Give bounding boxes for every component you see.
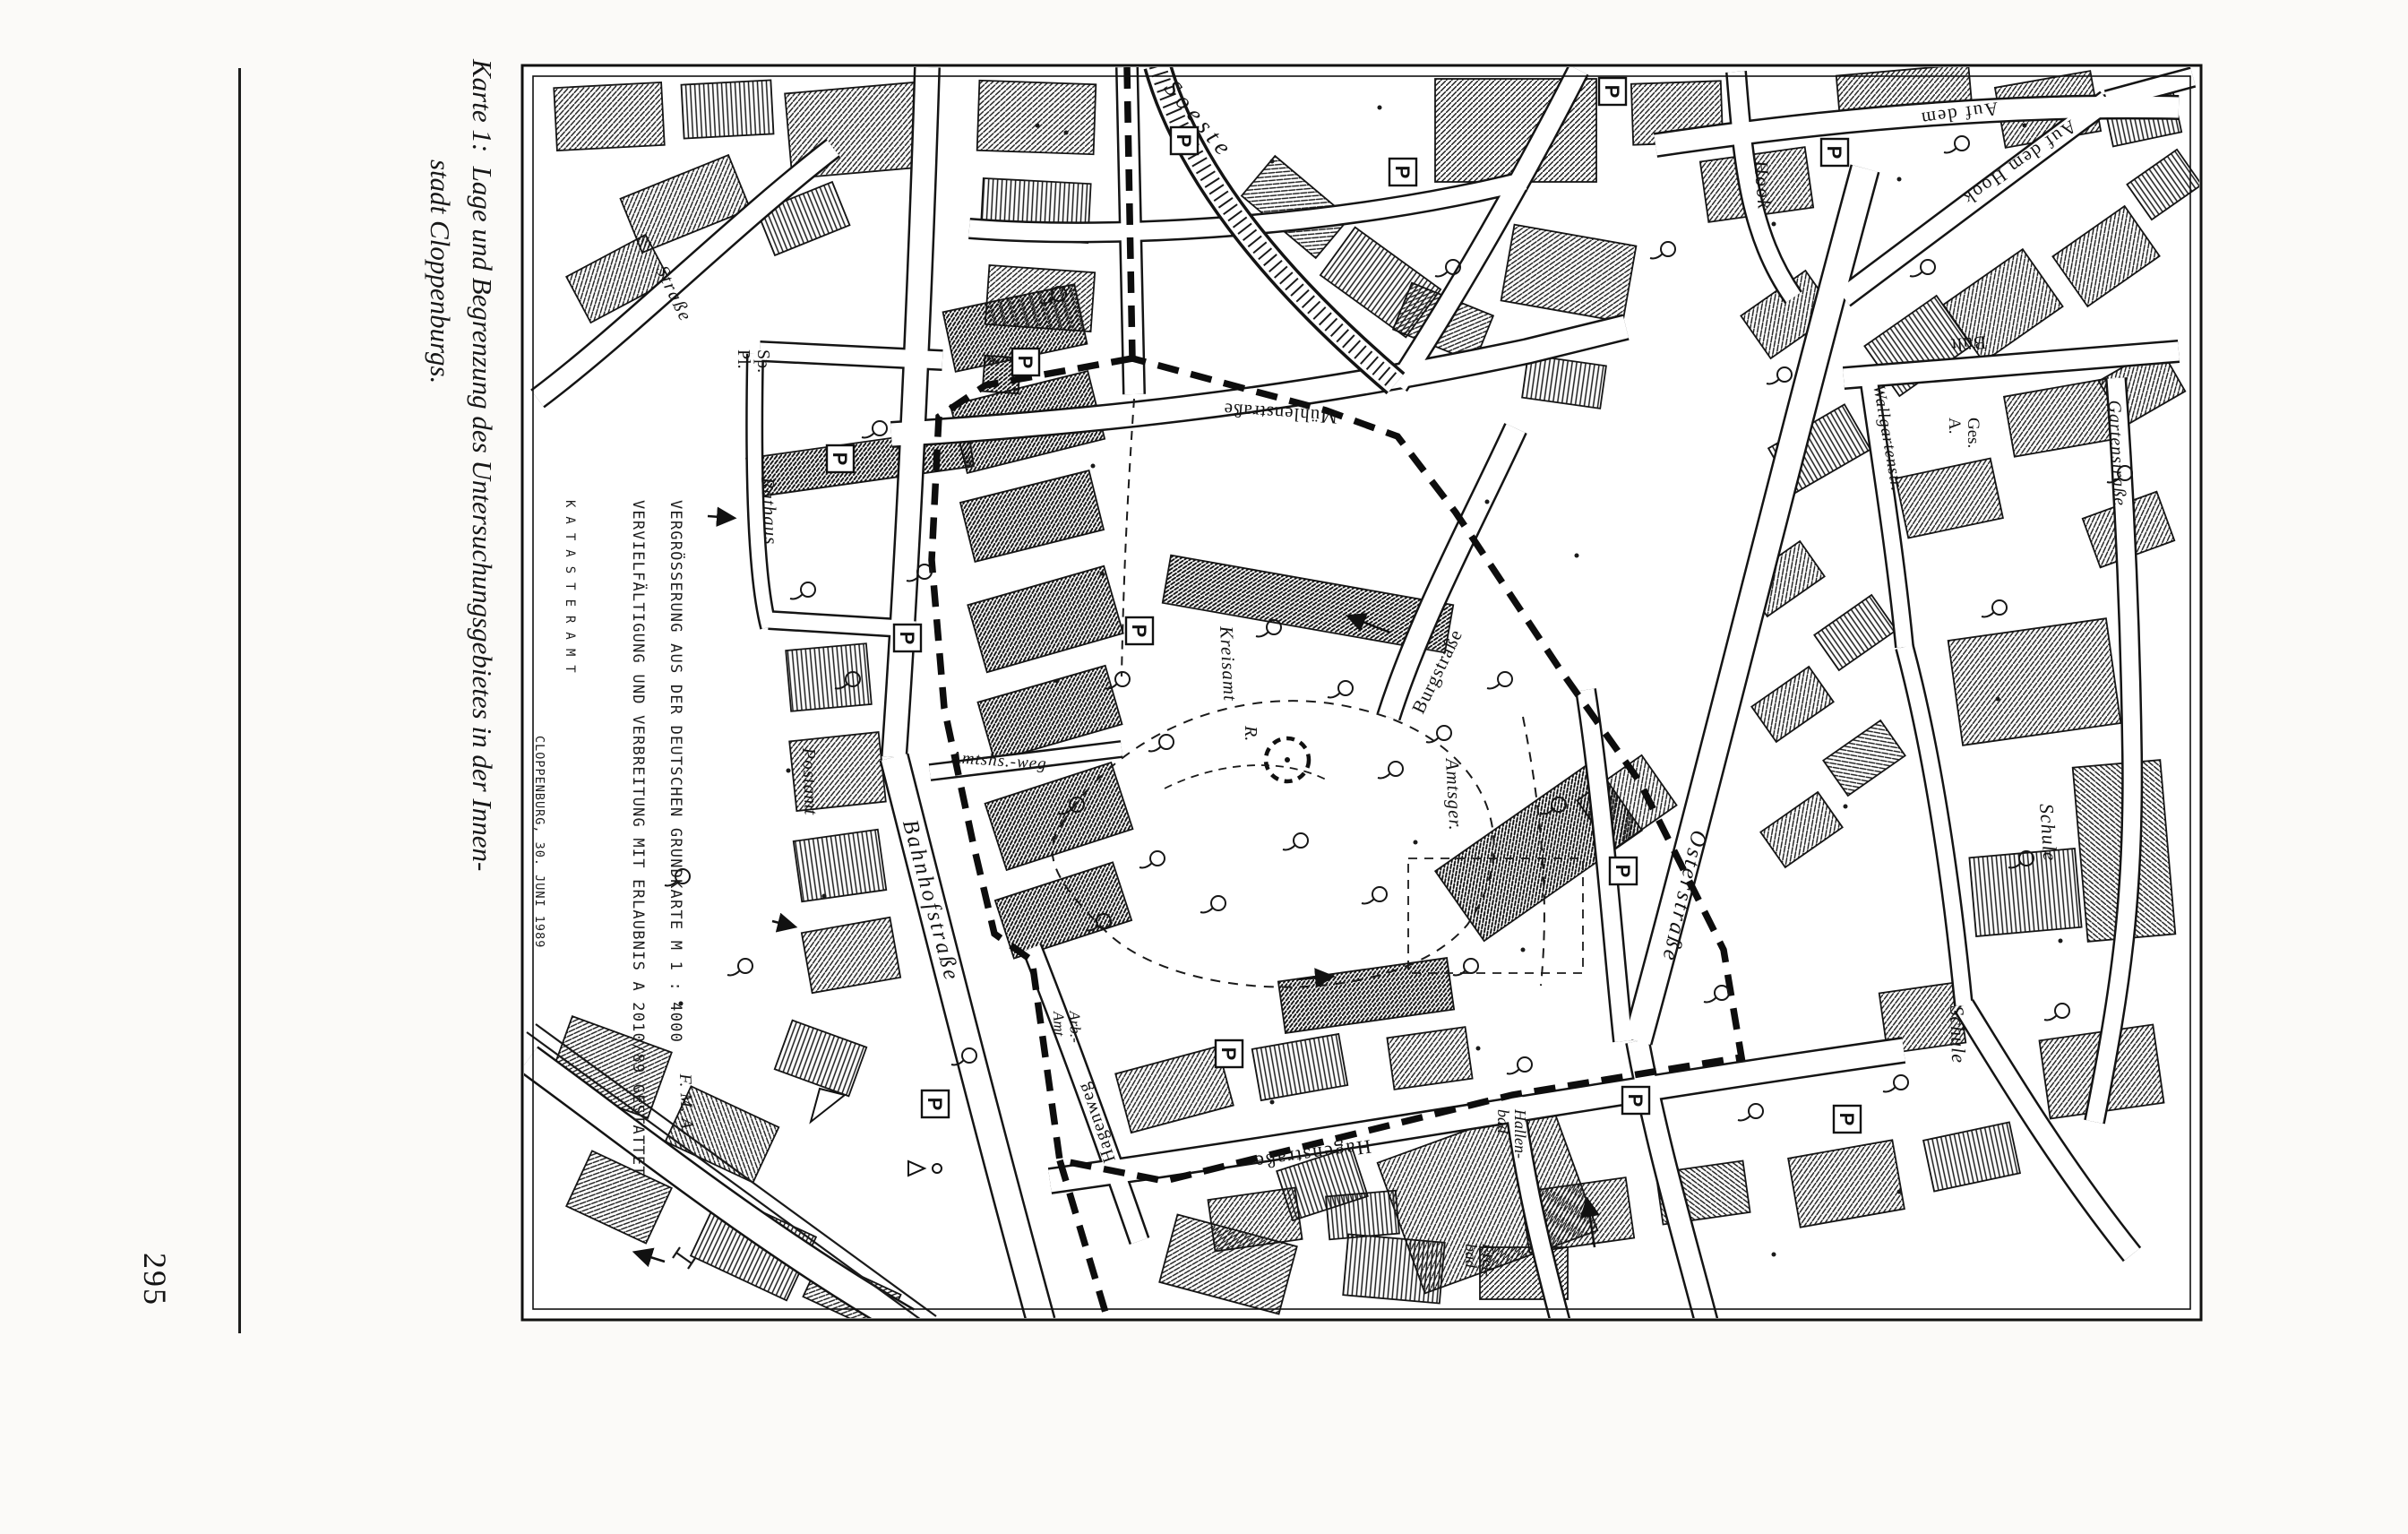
building — [681, 80, 773, 138]
map-attribution: VERGRÖSSERUNG AUS DER DEUTSCHEN GRUNDKAR… — [532, 500, 684, 1208]
parcel-dot — [1476, 1047, 1481, 1051]
building — [1387, 1027, 1472, 1090]
attribution-date: CLOPPENBURG, 30. JUNI 1989 — [532, 736, 546, 1208]
building — [1208, 1187, 1302, 1251]
parking-letter: P — [924, 1098, 946, 1111]
parcel-dot — [1091, 464, 1096, 469]
street-surface — [760, 351, 942, 360]
parcel-dot — [1996, 697, 2000, 702]
map-label-schule-1: Schule — [2035, 803, 2060, 862]
building — [554, 82, 664, 151]
parking-letter: P — [1823, 146, 1845, 159]
parcel-dot — [1055, 679, 1060, 684]
parking-letter: P — [1128, 625, 1150, 638]
parcel-dot — [1521, 948, 1526, 952]
building — [977, 81, 1096, 154]
parking-icon: P — [1389, 159, 1416, 185]
map-label-kreisamt: Kreisamt — [1216, 625, 1240, 702]
parcel-dot — [1270, 1100, 1275, 1105]
decor-dot — [1285, 757, 1290, 763]
parking-icon: P — [827, 445, 854, 472]
parking-icon: P — [1012, 349, 1039, 375]
building — [786, 643, 872, 711]
map-label-schule-2: Schule — [1946, 1005, 1969, 1064]
parcel-dot — [1897, 177, 1902, 182]
parking-icon: P — [1834, 1106, 1861, 1133]
parking-letter: P — [896, 632, 918, 645]
map-label-hook: Hook — [1750, 159, 1776, 211]
parking-icon: P — [1126, 617, 1153, 644]
parking-letter: P — [1836, 1113, 1858, 1126]
map-label-ges-a: Ges. A. — [1945, 418, 1982, 448]
parcel-dot — [2059, 939, 2063, 944]
parking-icon: P — [894, 625, 921, 651]
parking-letter: P — [1014, 356, 1036, 369]
parcel-dot — [787, 769, 791, 773]
parking-letter: P — [1173, 134, 1195, 148]
map-label-r-punkt: R. — [1240, 726, 1260, 741]
parking-letter: P — [1217, 1047, 1240, 1061]
parcel-dot — [1036, 124, 1040, 128]
parking-icon: P — [1599, 78, 1626, 105]
city-map: PPPPPPPPPPPPP — [0, 0, 2408, 1534]
parking-letter: P — [1391, 166, 1414, 179]
map-label-amtsger: Amtsger. — [1441, 758, 1466, 832]
parcel-dot — [822, 894, 827, 899]
parcel-dot — [1844, 805, 1848, 809]
map-label-rathaus: Rathaus — [757, 477, 781, 546]
parcel-dot — [1575, 554, 1579, 558]
building — [1948, 618, 2121, 745]
parking-letter: P — [1612, 865, 1634, 878]
parking-letter: P — [829, 452, 851, 466]
parcel-dot — [1772, 222, 1776, 227]
building — [1969, 849, 2081, 936]
parking-icon: P — [922, 1090, 949, 1117]
attribution-permission: VERVIELFÄLTIGUNG UND VERBREITUNG MIT ERL… — [629, 500, 647, 1208]
map-label-arb-amt: Arb.- Amt — [1049, 1011, 1083, 1044]
map-label-sp-pl: Sp. Pl. — [734, 349, 772, 373]
parcel-dot — [1772, 1253, 1776, 1257]
parcel-dot — [1485, 500, 1490, 504]
building — [794, 830, 887, 902]
parking-letter: P — [1601, 85, 1623, 99]
attribution-agency: KATASTERAMT — [563, 500, 577, 1208]
parking-icon: P — [1610, 857, 1637, 884]
parking-letter: P — [1624, 1094, 1647, 1107]
parcel-dot — [1378, 106, 1382, 110]
map-label-buelt: Bült — [1949, 332, 1987, 355]
parcel-dot — [1064, 131, 1069, 135]
parking-icon: P — [1821, 139, 1848, 166]
parcel-dot — [1270, 159, 1275, 164]
map-label-f-m-a: F. M. A. — [675, 1073, 695, 1135]
building — [1326, 1191, 1399, 1240]
parcel-dot — [2023, 124, 2027, 128]
map-label-hallenbad: Hallen- bad — [1493, 1109, 1528, 1159]
parking-icon: P — [1622, 1087, 1649, 1114]
parcel-dot — [1100, 572, 1105, 576]
map-label-postamt: Postamt — [798, 747, 821, 816]
map-label-freibad: Frei- bad — [1461, 1244, 1496, 1276]
parking-icon: P — [1216, 1040, 1243, 1067]
parcel-dot — [1414, 840, 1418, 845]
parcel-dot — [1897, 1190, 1902, 1194]
